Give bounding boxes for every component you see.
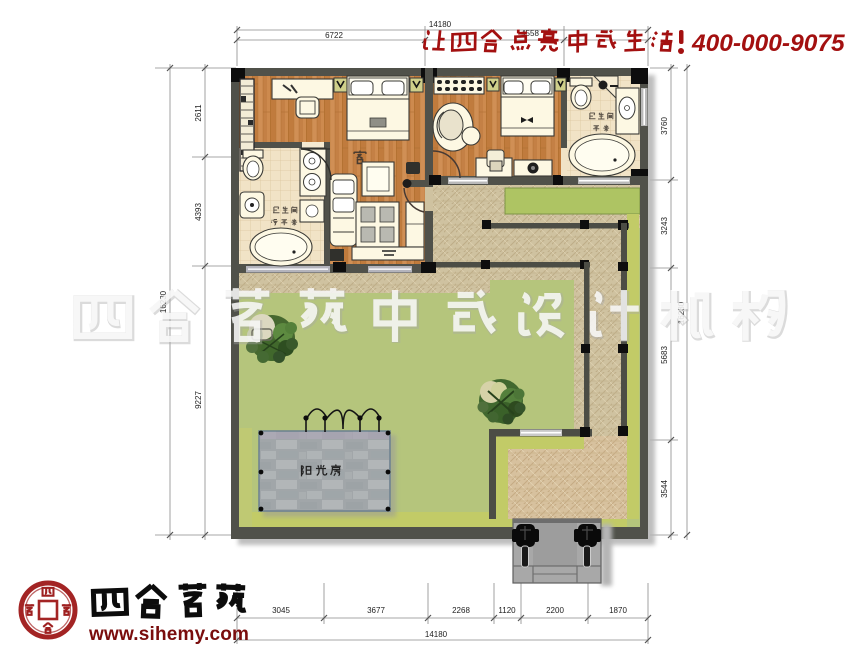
- svg-text:3243: 3243: [660, 217, 669, 235]
- svg-text:14180: 14180: [429, 20, 452, 29]
- svg-text:2268: 2268: [452, 606, 470, 615]
- svg-text:2611: 2611: [194, 104, 203, 122]
- svg-text:6722: 6722: [325, 31, 343, 40]
- svg-text:3544: 3544: [660, 480, 669, 498]
- svg-text:400-000-9075: 400-000-9075: [691, 30, 845, 57]
- svg-text:3677: 3677: [367, 606, 385, 615]
- svg-text:9227: 9227: [194, 391, 203, 409]
- svg-text:3045: 3045: [272, 606, 290, 615]
- svg-text:5683: 5683: [660, 346, 669, 364]
- svg-text:2200: 2200: [546, 606, 564, 615]
- svg-text:14180: 14180: [425, 630, 448, 639]
- svg-text:4393: 4393: [194, 203, 203, 221]
- svg-text:www.sihemy.com: www.sihemy.com: [88, 624, 249, 645]
- svg-text:1120: 1120: [498, 606, 516, 615]
- svg-text:1870: 1870: [609, 606, 627, 615]
- svg-text:3760: 3760: [660, 117, 669, 135]
